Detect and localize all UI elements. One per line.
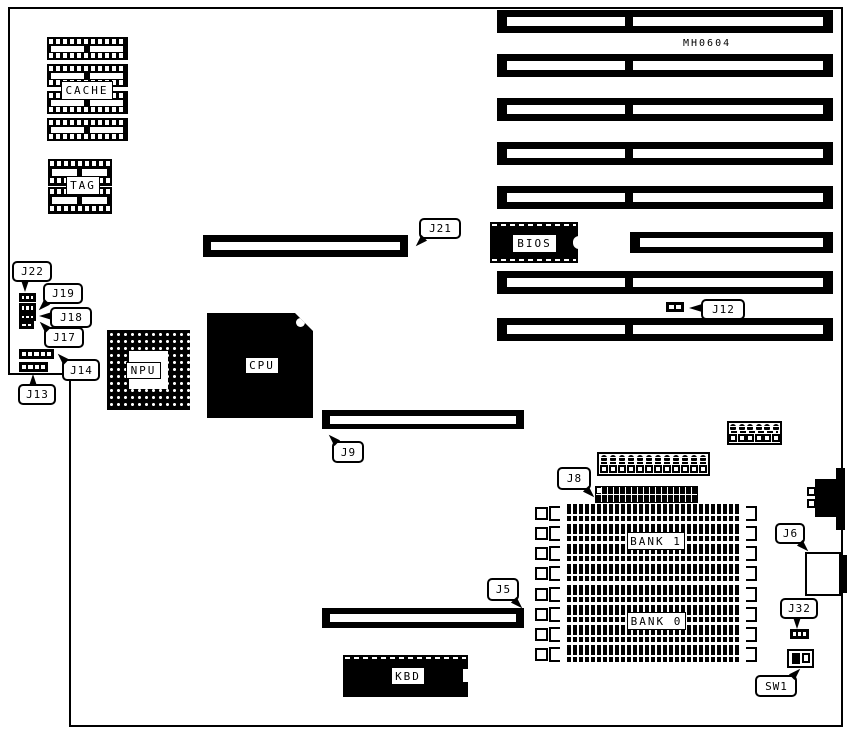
simm-clip-left — [549, 526, 560, 541]
cache-chip — [47, 118, 128, 141]
simm-clip-right — [746, 607, 757, 622]
j12-jumper — [666, 302, 684, 312]
board-outline-left-upper — [8, 7, 10, 375]
j22-jumper — [19, 293, 36, 302]
j18-jumper — [19, 313, 36, 321]
callout-j32-tail — [793, 617, 801, 629]
simm-left-square — [535, 567, 548, 580]
callout-j13: J13 — [18, 384, 56, 405]
callout-j22-tail — [21, 280, 29, 292]
cache-chip-pins-bottom — [49, 134, 126, 139]
callout-j19-text: J19 — [52, 287, 75, 300]
part-number-text: MH0604 — [683, 38, 731, 49]
simm-clip-right — [746, 627, 757, 642]
callout-j8-text: J8 — [567, 472, 582, 485]
callout-j13-text: J13 — [26, 388, 49, 401]
j6-edge-tab — [841, 555, 847, 593]
motherboard-diagram: MH0604 CACHE TAG NPU CPU BIOS KBD BANK 1… — [0, 0, 851, 732]
label-cpu: CPU — [245, 357, 279, 374]
cache-chip-body1 — [90, 46, 123, 52]
j14-jumper — [19, 349, 54, 359]
label-tag: TAG — [66, 176, 100, 195]
cache-chip-pins-bottom — [49, 53, 126, 58]
sw1-slider — [792, 653, 800, 664]
label-bios: BIOS — [512, 234, 557, 253]
simm-left-square — [535, 527, 548, 540]
simm-contact-bar — [565, 564, 740, 581]
j17-jumper — [19, 321, 34, 329]
simm-socket — [535, 585, 763, 602]
callout-j12-tail — [689, 304, 702, 312]
board-outline-bottom — [69, 725, 843, 727]
j19-jumper — [19, 303, 36, 313]
label-kbd: KBD — [391, 667, 425, 685]
callout-j21: J21 — [419, 218, 461, 239]
simm-contact-bar — [565, 585, 740, 602]
cache-chip-body0 — [51, 46, 84, 52]
tag-chip-body1 — [82, 169, 107, 176]
simm-clip-left — [549, 566, 560, 581]
callout-j8: J8 — [557, 467, 591, 490]
callout-j6: J6 — [775, 523, 805, 544]
callout-sw1-tail — [789, 666, 803, 680]
callout-j9: J9 — [332, 441, 364, 463]
sw1-cell — [802, 653, 810, 663]
simm-socket — [535, 645, 763, 662]
isa-slot — [497, 142, 833, 165]
cache-chip-body1 — [90, 100, 123, 106]
callout-j14: J14 — [62, 359, 100, 381]
simm-socket — [535, 504, 763, 521]
label-npu: NPU — [126, 362, 161, 379]
aux-connector-12pos — [597, 452, 710, 476]
simm-left-square — [535, 588, 548, 601]
isa-slot — [497, 10, 833, 33]
cache-chip-body0 — [51, 73, 84, 79]
din-connector-pin-upper — [807, 487, 816, 496]
bios-dash-bottom — [492, 259, 576, 261]
simm-clip-left — [549, 607, 560, 622]
callout-j12-text: J12 — [712, 303, 735, 316]
bios-dash-top — [492, 224, 576, 226]
simm-clip-right — [746, 506, 757, 521]
callout-j13-tail — [29, 374, 37, 386]
j8-header — [595, 486, 698, 503]
j8-pin1-cell — [597, 488, 602, 493]
simm-clip-right — [746, 526, 757, 541]
simm-contact-bar — [565, 504, 740, 521]
cpu-pin1-dot — [296, 318, 305, 327]
callout-j5-text: J5 — [496, 583, 511, 596]
callout-j12: J12 — [701, 299, 745, 320]
cache-chip-body0 — [51, 127, 84, 133]
tag-chip-body1 — [82, 197, 107, 204]
simm-socket — [535, 564, 763, 581]
j21-slot — [203, 235, 408, 257]
tag-chip-body0 — [52, 169, 77, 176]
bios-notch — [573, 236, 579, 249]
callout-j21-tail — [413, 235, 427, 249]
tag-chip-pins-top — [50, 161, 110, 166]
callout-sw1-text: SW1 — [765, 680, 788, 693]
power-connector-6pos — [727, 421, 782, 445]
simm-clip-left — [549, 627, 560, 642]
j6-connector — [805, 552, 841, 596]
tag-chip-body0 — [52, 197, 77, 204]
isa-slot-8bit — [630, 232, 833, 253]
callout-j18: J18 — [50, 307, 92, 328]
isa-slot — [497, 98, 833, 121]
isa-slot — [497, 271, 833, 294]
cache-chip-body1 — [90, 73, 123, 79]
simm-left-square — [535, 547, 548, 560]
simm-clip-right — [746, 566, 757, 581]
simm-left-square — [535, 608, 548, 621]
simm-clip-right — [746, 546, 757, 561]
simm-clip-left — [549, 587, 560, 602]
simm-left-square — [535, 628, 548, 641]
cache-chip-pins-bottom — [49, 107, 126, 112]
simm-clip-left — [549, 647, 560, 662]
callout-j9-tail — [326, 432, 340, 446]
callout-j17: J17 — [44, 327, 84, 348]
j13-jumper — [19, 362, 48, 372]
simm-contact-bar — [565, 645, 740, 662]
simm-left-square — [535, 507, 548, 520]
callout-j14-tail — [55, 351, 69, 365]
din-connector-edge — [836, 468, 845, 530]
simm-left-square — [535, 648, 548, 661]
isa-slot — [497, 54, 833, 77]
callout-j6-text: J6 — [783, 527, 798, 540]
callout-j18-text: J18 — [60, 311, 83, 324]
callout-sw1: SW1 — [755, 675, 797, 697]
cache-chip-body1 — [90, 127, 123, 133]
board-outline-left-lower — [69, 373, 71, 727]
cache-chip — [47, 37, 128, 60]
board-outline-right — [841, 7, 843, 727]
j32-jumper — [790, 629, 809, 639]
j9-slot — [322, 410, 524, 429]
label-bank1: BANK 1 — [627, 532, 685, 550]
callout-j14-text: J14 — [70, 364, 93, 377]
callout-j32: J32 — [780, 598, 818, 619]
callout-j5: J5 — [487, 578, 519, 601]
label-cache: CACHE — [61, 81, 113, 100]
callout-j9-text: J9 — [341, 446, 356, 459]
callout-j21-text: J21 — [429, 222, 452, 235]
cache-chip-pins-top — [49, 120, 126, 125]
callout-j17-text: J17 — [53, 331, 76, 344]
label-bank0: BANK 0 — [627, 612, 686, 630]
isa-slot — [497, 186, 833, 209]
cache-chip-pins-top — [49, 39, 126, 44]
cache-chip-body0 — [51, 100, 84, 106]
board-outline-top — [8, 7, 843, 9]
callout-j32-text: J32 — [788, 602, 811, 615]
tag-chip-pins-bottom — [50, 206, 110, 211]
callout-j19-tail — [36, 299, 50, 313]
callout-j19: J19 — [43, 283, 83, 304]
simm-clip-right — [746, 647, 757, 662]
callout-j22-text: J22 — [21, 265, 44, 278]
sw1-switch — [787, 649, 814, 668]
callout-j17-tail — [37, 319, 51, 333]
kbd-dash-top — [345, 657, 466, 659]
callout-j22: J22 — [12, 261, 52, 282]
simm-clip-left — [549, 506, 560, 521]
j5-slot — [322, 608, 524, 628]
din-connector-pin-lower — [807, 499, 816, 508]
isa-slot — [497, 318, 833, 341]
cache-chip-pins-top — [49, 66, 126, 71]
simm-clip-left — [549, 546, 560, 561]
kbd-notch — [463, 669, 468, 682]
simm-clip-right — [746, 587, 757, 602]
